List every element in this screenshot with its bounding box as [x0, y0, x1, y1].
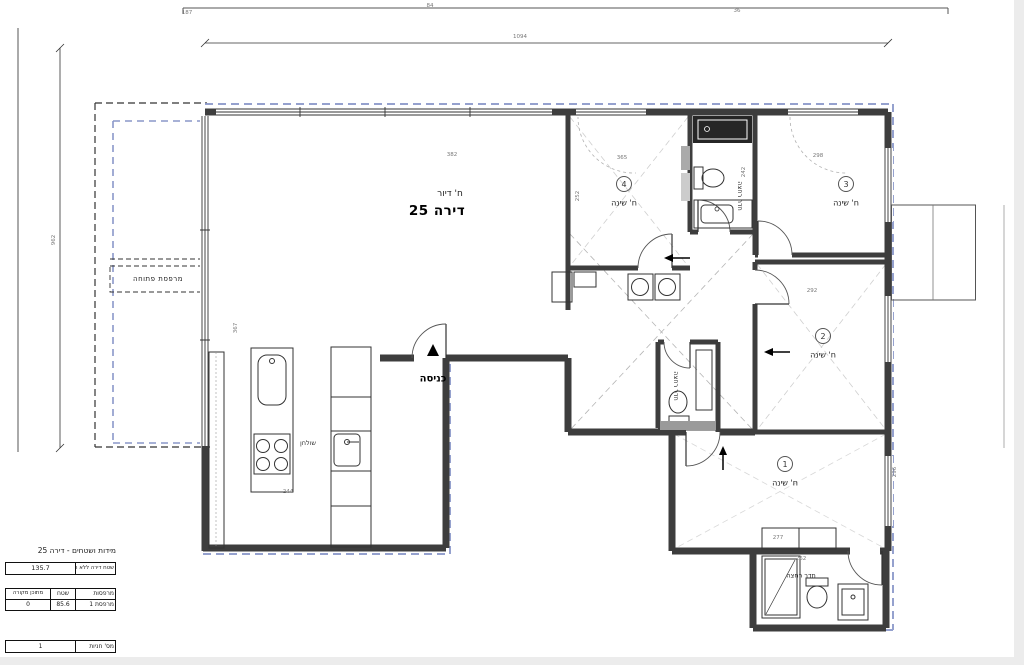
- dimension-text: 262: [796, 556, 807, 562]
- room-number-badge: 3: [838, 176, 854, 192]
- entry-label: כניסה: [420, 374, 447, 385]
- balcony-row-covered: 0: [5, 599, 51, 611]
- sheet-edge-bottom: [0, 657, 1024, 665]
- room-number-badge: 2: [815, 328, 831, 344]
- bedroom-label: ח' שינה: [833, 199, 859, 208]
- living-room-label: ח' דיור: [437, 189, 463, 199]
- floor-plan-drawing: [0, 0, 1024, 665]
- hall-fixtures: [552, 272, 680, 302]
- parking-table: מס' חניות 1: [6, 641, 116, 653]
- balcony-row-name: מרפסת 1: [75, 599, 116, 611]
- bedroom-label: ח' שינה: [810, 351, 836, 360]
- dimension-text: 382: [447, 152, 458, 158]
- entry-arrow-icon: [427, 344, 439, 356]
- kitchen-fixtures: [209, 347, 371, 548]
- dimension-text: 252: [575, 191, 581, 202]
- dimension-text: 298: [813, 153, 824, 159]
- dimension-text: 1094: [513, 34, 527, 40]
- bathroom-label: חדר רחצה: [736, 181, 744, 211]
- dimension-text: 962: [51, 235, 57, 246]
- balconies-table: מרפסות שטח מתוכן מקורה מרפסת 1 85.6 0: [6, 589, 116, 611]
- room-number-badge: 1: [777, 456, 793, 472]
- unit-number-label: דירה 25: [409, 203, 465, 219]
- balcony-label: מרפסת פתוחה: [133, 275, 183, 283]
- dimension-text: 365: [617, 155, 628, 161]
- dimension-text: 296: [892, 467, 898, 478]
- bathroom-bottom-fixtures: [762, 556, 868, 620]
- apartment-area-label: שטח דירה ללא המרפסת: [75, 562, 116, 575]
- panel-title: מידות ושטחים - דירה 25: [4, 546, 116, 555]
- apartment-area-value: 135.7: [5, 562, 76, 575]
- dimension-lines: [56, 39, 1004, 452]
- bathroom-label: חדר רחצה: [786, 573, 816, 580]
- dimension-text: 84: [427, 3, 434, 9]
- bedroom-label: ח' שינה: [772, 479, 798, 488]
- bathroom-label: חדר רחצה: [672, 371, 680, 401]
- exterior-walls: [203, 112, 888, 628]
- bedroom-label: ח' שינה: [611, 199, 637, 208]
- dimension-text: 242: [741, 167, 747, 178]
- laundry-screen: [892, 205, 976, 300]
- parking-label: מס' חניות: [75, 640, 116, 653]
- dimension-text: 187: [182, 10, 193, 16]
- floor-plan-sheet: ח' דיור דירה 25 כניסה מרפסת פתוחה שולחן …: [0, 0, 1024, 665]
- dimension-text: 277: [773, 535, 784, 541]
- balcony-row-area: 85.6: [50, 599, 76, 611]
- direction-arrows: [427, 254, 790, 470]
- room-number-badge: 4: [616, 176, 632, 192]
- bathroom-mid-fixtures: [660, 350, 716, 430]
- sheet-edge-right: [1014, 0, 1024, 665]
- parking-value: 1: [5, 640, 76, 653]
- dimension-text: 367: [233, 323, 239, 334]
- dimension-text: 292: [807, 288, 818, 294]
- dimension-text: 244: [283, 489, 294, 495]
- apartment-area-table: שטח דירה ללא המרפסת 135.7: [6, 563, 116, 575]
- sheet-frame: [18, 8, 948, 452]
- kitchen-table-label: שולחן: [300, 439, 316, 447]
- dimension-text: 36: [734, 8, 741, 14]
- door-swings: [412, 200, 882, 585]
